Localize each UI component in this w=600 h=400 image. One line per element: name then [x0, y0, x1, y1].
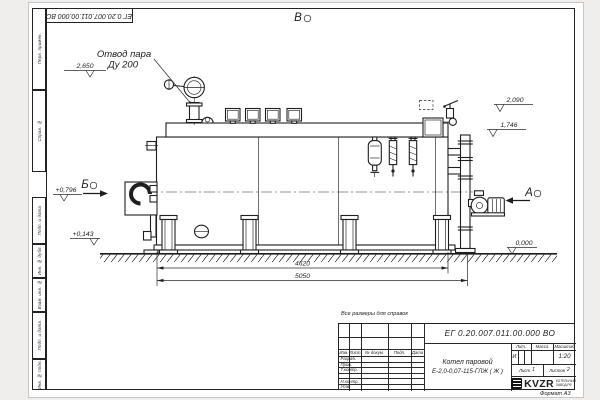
svg-text:0,000: 0,000 — [515, 240, 532, 247]
sheet-label: Лист — [519, 368, 530, 373]
svg-text:2,650: 2,650 — [75, 63, 93, 70]
boiler-shell — [157, 137, 449, 245]
svg-text:+0,143: +0,143 — [73, 231, 94, 238]
sheet-value: 1 — [532, 367, 535, 373]
product-name-line1: Котел паровой — [442, 358, 492, 367]
product-name-line2: Е-2,0-0,07-115-ГЛЖ ( Ж ) — [432, 367, 503, 376]
leg — [433, 216, 451, 254]
reference-dims-note: Все размеры для справок — [341, 311, 408, 317]
svg-text:1,746: 1,746 — [500, 122, 517, 129]
drain-valve-icon — [144, 232, 152, 241]
feed-pump-icon — [469, 191, 505, 216]
format-label: Формат А3 — [540, 391, 571, 397]
row-utv: Утв. — [339, 384, 363, 390]
bottom-rail — [154, 245, 455, 250]
steam-valve-icon — [164, 76, 204, 126]
sheets-value: 2 — [567, 367, 570, 373]
blueprint-page: Перв. примен. Справ. № Подп. и дата Инв.… — [0, 0, 600, 400]
ground-line — [100, 254, 557, 262]
company-logo: KVZR КОТЕЛЬНЫЙ ЗАВОД.РФ — [511, 376, 576, 391]
view-marker-right: А — [506, 187, 541, 204]
svg-text:+0,796: +0,796 — [56, 187, 77, 194]
elevation-mark: +0,143 — [70, 231, 100, 245]
hatch-dashed-outline — [420, 101, 434, 110]
logo-text: KVZR — [524, 378, 554, 390]
svg-text:А: А — [524, 187, 533, 199]
svg-text:2,090: 2,090 — [505, 97, 523, 104]
scale-value: 1:20 — [553, 350, 576, 365]
lit-value: И — [511, 350, 518, 365]
col-data: Дата — [411, 349, 424, 356]
elevation-mark: 2,650 — [64, 63, 106, 77]
leg — [341, 216, 359, 254]
downcomer-and-pump — [448, 135, 505, 253]
top-fittings — [202, 109, 302, 124]
elevation-mark: 1,746 — [487, 122, 526, 137]
leg — [160, 216, 178, 254]
elevation-mark: 2,090 — [494, 97, 533, 112]
burner-unit — [125, 142, 158, 254]
svg-text:Б: Б — [81, 179, 89, 191]
sheets-label: Листов — [549, 368, 565, 373]
logo-sub2: ЗАВОД.РФ — [556, 384, 576, 388]
dim-total-length: 5050 — [295, 273, 310, 280]
dim-inner-length: 4620 — [295, 260, 310, 267]
hatch-box — [287, 109, 302, 124]
elevation-mark: 0,000 — [507, 240, 537, 254]
boiler-plant-logo-icon — [511, 378, 522, 389]
view-marker-top: В — [294, 12, 311, 24]
title-block: Изм. Лист № докум. Подп. Дата Разраб. Пр… — [338, 323, 575, 390]
leg — [241, 216, 259, 254]
boiler-top-platform — [166, 123, 448, 137]
view-marker-left: Б — [81, 179, 108, 197]
doc-number: ЕГ 0.20.007.011.00.000 ВО — [445, 329, 556, 338]
mass-label: Масса — [531, 343, 553, 350]
callout-line1: Отвод пара — [97, 49, 151, 60]
safety-valve-block — [420, 101, 459, 138]
hatch-box — [246, 109, 261, 124]
callout-line2: Ду 200 — [107, 60, 139, 71]
row-tkontr: Т.контр. — [339, 367, 363, 373]
col-docum: № докум. — [361, 349, 388, 356]
hatch-box — [226, 109, 241, 124]
steam-outlet-callout: Отвод пара Ду 200 — [97, 49, 191, 104]
elevation-mark: +0,796 — [53, 187, 82, 201]
col-podp: Подп. — [388, 349, 411, 356]
col-izm: Изм. — [339, 349, 349, 356]
safety-valve-icon — [447, 109, 454, 119]
col-list: Лист — [349, 349, 361, 356]
svg-text:В: В — [294, 12, 302, 24]
hatch-box — [266, 109, 281, 124]
